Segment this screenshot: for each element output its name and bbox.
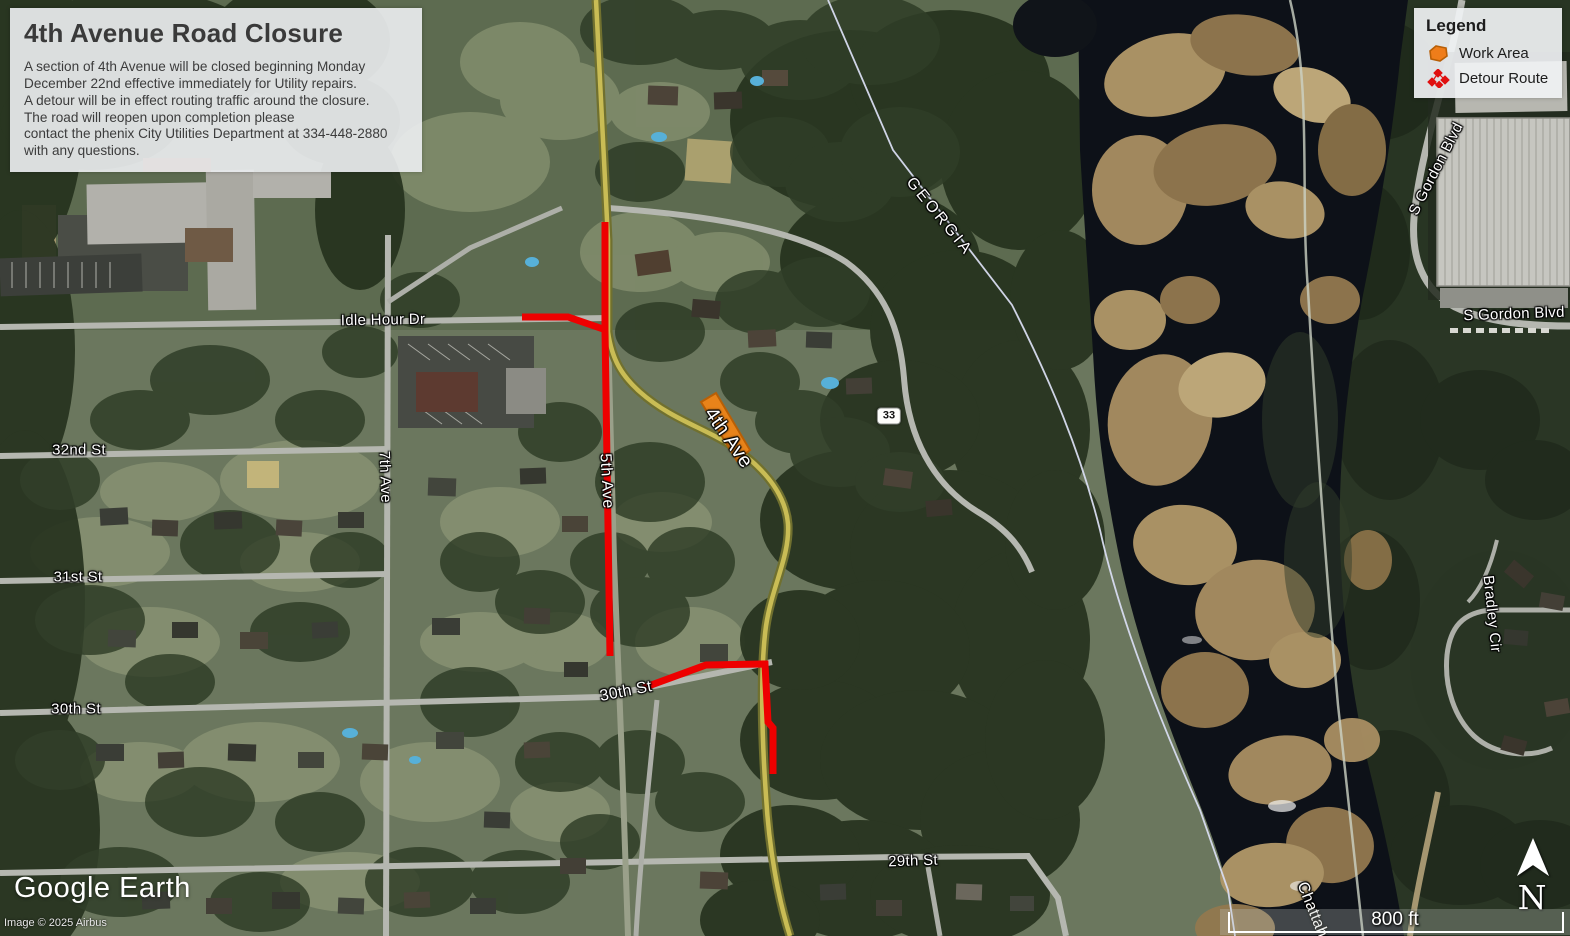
scale-bar: 800 ft (1220, 909, 1570, 935)
info-title: 4th Avenue Road Closure (24, 18, 408, 49)
north-arrow-icon (1506, 836, 1558, 878)
legend-item-label: Detour Route (1459, 70, 1548, 87)
legend-item-detour-route: Detour Route (1426, 69, 1552, 88)
info-line: A section of 4th Avenue will be closed b… (24, 59, 408, 76)
info-line: with any questions. (24, 143, 408, 160)
google-earth-logo: Google Earth (14, 872, 191, 905)
google-earth-map-view: Idle Hour Dr 32nd St 31st St 30th St 30t… (0, 0, 1570, 936)
route-33-shield: 33 (877, 408, 901, 425)
info-line: A detour will be in effect routing traff… (24, 93, 408, 110)
legend-box: Legend Work Area Detour Route (1414, 8, 1562, 98)
legend-title: Legend (1426, 16, 1552, 36)
detour-route-icon (1426, 69, 1450, 88)
legend-item-work-area: Work Area (1426, 44, 1552, 63)
legend-item-label: Work Area (1459, 45, 1529, 62)
info-line: December 22nd effective immediately for … (24, 76, 408, 93)
scale-bar-value: 800 ft (1220, 909, 1570, 931)
info-line: The road will reopen upon completion ple… (24, 110, 408, 127)
info-line: contact the phenix City Utilities Depart… (24, 126, 408, 143)
road-closure-info-box: 4th Avenue Road Closure A section of 4th… (10, 8, 422, 172)
work-area-icon (1426, 44, 1450, 63)
imagery-attribution: Image © 2025 Airbus (4, 917, 107, 929)
compass: N (1506, 836, 1558, 913)
church-lot (398, 336, 546, 428)
